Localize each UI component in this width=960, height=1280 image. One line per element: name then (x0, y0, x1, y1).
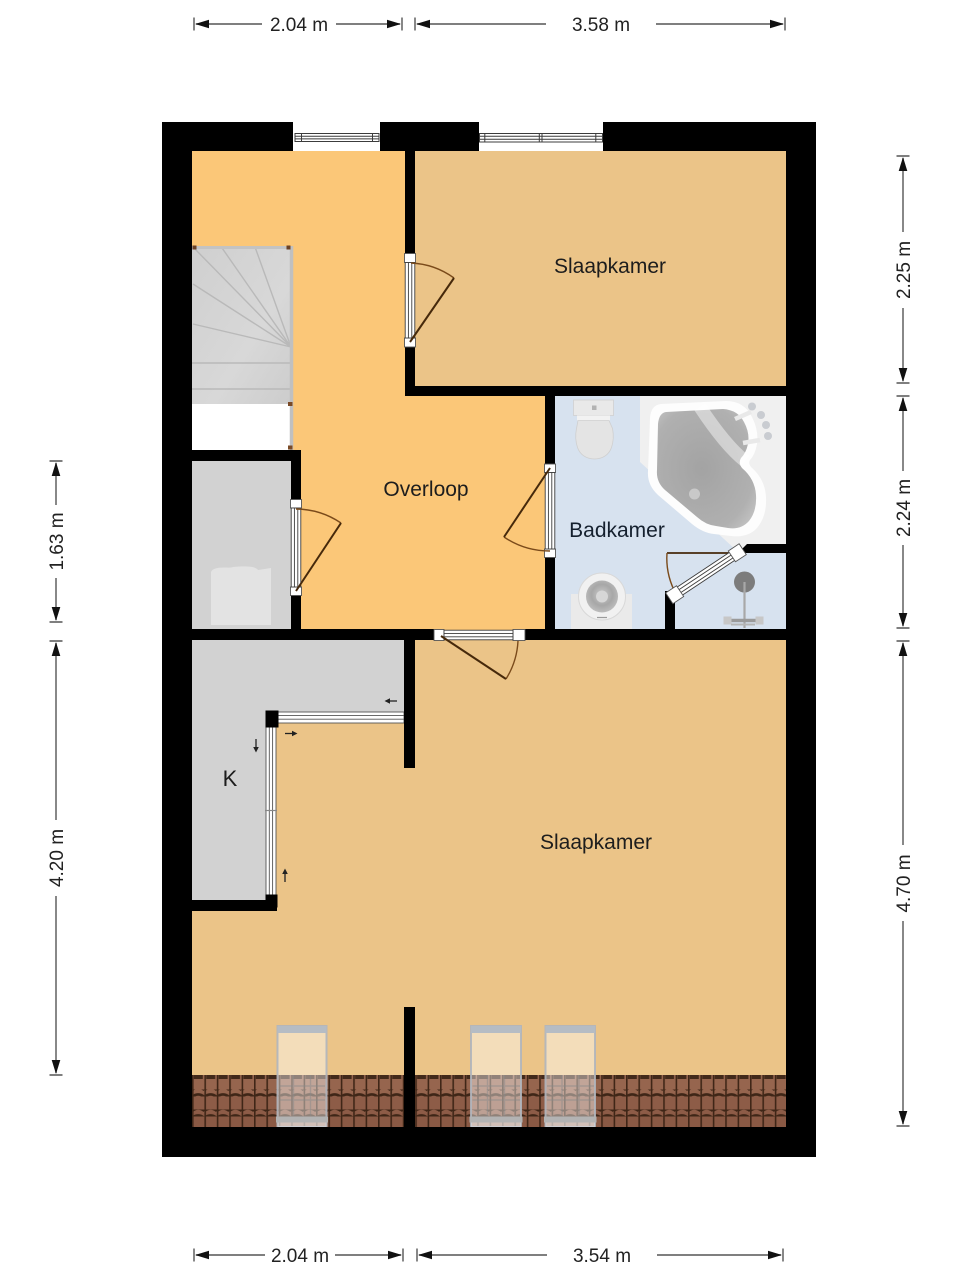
svg-text:Slaapkamer: Slaapkamer (540, 831, 652, 854)
svg-text:2.04 m: 2.04 m (270, 15, 328, 36)
svg-text:3.54 m: 3.54 m (573, 1246, 631, 1267)
svg-text:4.20 m: 4.20 m (47, 829, 68, 887)
svg-text:K: K (223, 766, 238, 791)
svg-text:Overloop: Overloop (383, 478, 468, 501)
svg-text:2.24 m: 2.24 m (894, 479, 915, 537)
svg-text:2.04 m: 2.04 m (271, 1246, 329, 1267)
svg-text:3.58 m: 3.58 m (572, 15, 630, 36)
svg-text:Slaapkamer: Slaapkamer (554, 255, 666, 278)
svg-text:4.70 m: 4.70 m (894, 854, 915, 912)
svg-text:2.25 m: 2.25 m (894, 241, 915, 299)
svg-text:Badkamer: Badkamer (569, 519, 665, 542)
svg-text:1.63 m: 1.63 m (47, 512, 68, 570)
